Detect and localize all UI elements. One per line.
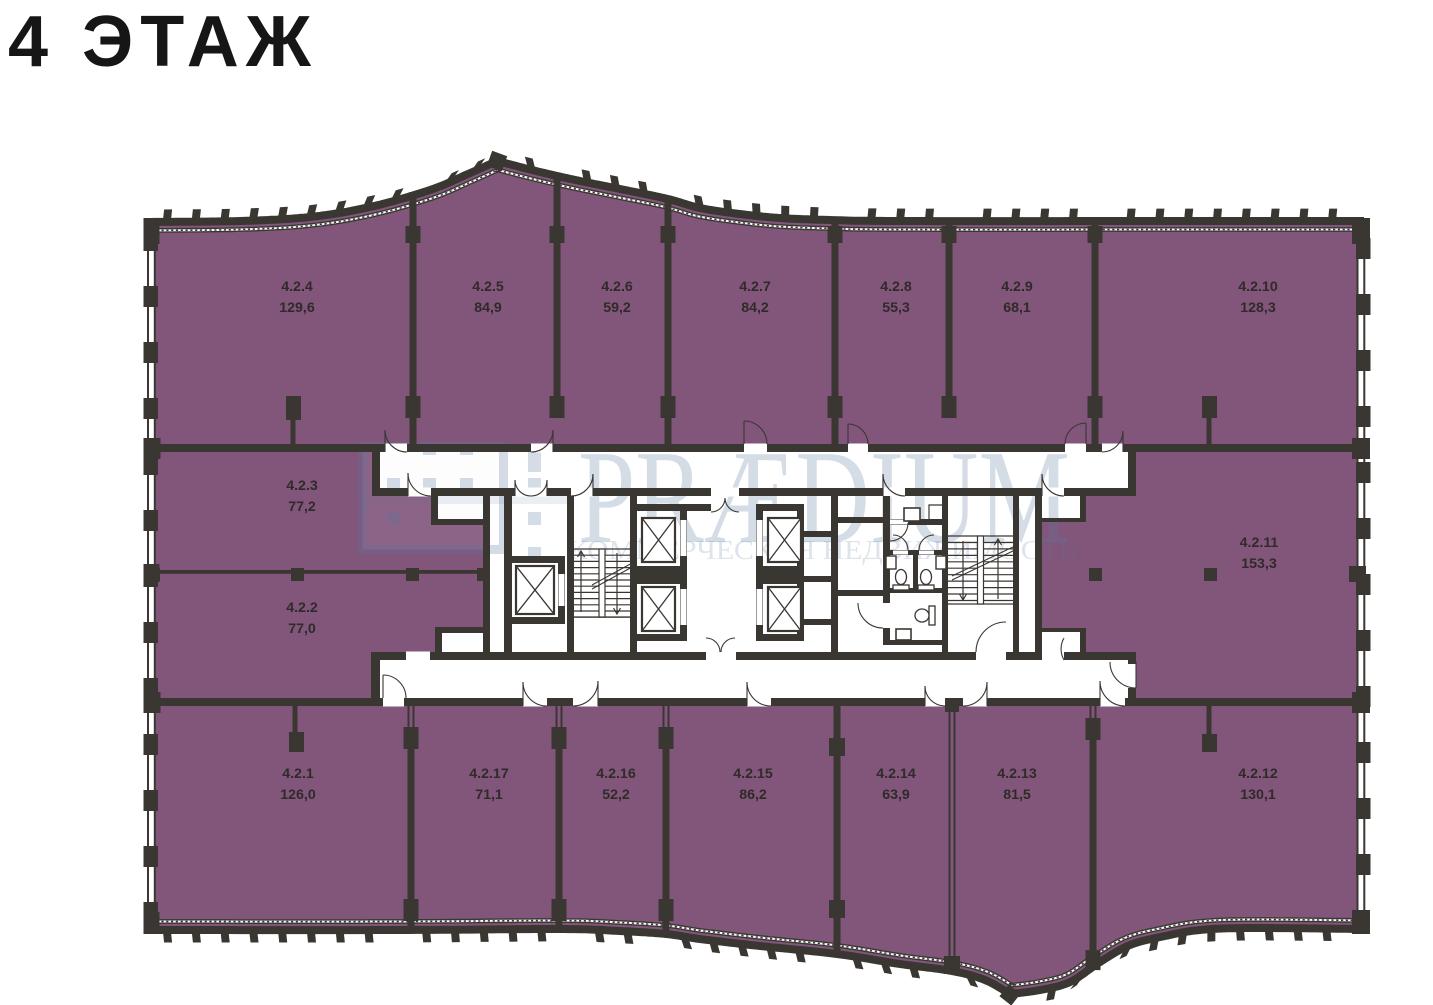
svg-text:4.2.10: 4.2.10: [1238, 279, 1278, 295]
svg-text:63,9: 63,9: [882, 787, 910, 803]
svg-text:84,2: 84,2: [741, 300, 769, 316]
svg-text:126,0: 126,0: [280, 787, 316, 803]
svg-text:153,3: 153,3: [1241, 556, 1277, 572]
svg-text:4.2.5: 4.2.5: [472, 279, 504, 295]
svg-text:4.2.17: 4.2.17: [469, 766, 509, 782]
svg-text:130,1: 130,1: [1240, 787, 1276, 803]
svg-text:4.2.15: 4.2.15: [733, 766, 773, 782]
svg-text:128,3: 128,3: [1240, 300, 1276, 316]
svg-text:81,5: 81,5: [1003, 787, 1031, 803]
svg-text:77,2: 77,2: [288, 499, 316, 515]
svg-text:86,2: 86,2: [739, 787, 767, 803]
svg-text:71,1: 71,1: [475, 787, 503, 803]
svg-text:4.2.7: 4.2.7: [739, 279, 771, 295]
svg-text:4.2.16: 4.2.16: [596, 766, 636, 782]
svg-text:55,3: 55,3: [882, 300, 910, 316]
svg-text:4.2.2: 4.2.2: [286, 600, 318, 616]
svg-text:4.2.11: 4.2.11: [1240, 535, 1279, 551]
svg-text:77,0: 77,0: [288, 621, 316, 637]
svg-text:4.2.9: 4.2.9: [1001, 279, 1033, 295]
svg-text:84,9: 84,9: [474, 300, 502, 316]
svg-text:59,2: 59,2: [603, 300, 631, 316]
svg-text:52,2: 52,2: [602, 787, 630, 803]
svg-text:129,6: 129,6: [279, 300, 315, 316]
svg-text:68,1: 68,1: [1003, 300, 1031, 316]
svg-text:4.2.8: 4.2.8: [880, 279, 912, 295]
svg-text:4.2.13: 4.2.13: [997, 766, 1037, 782]
svg-text:4.2.12: 4.2.12: [1238, 766, 1278, 782]
svg-text:4.2.6: 4.2.6: [601, 279, 633, 295]
svg-text:4.2.14: 4.2.14: [876, 766, 916, 782]
svg-text:4.2.3: 4.2.3: [286, 478, 318, 494]
svg-text:4.2.4: 4.2.4: [281, 279, 313, 295]
svg-text:4.2.1: 4.2.1: [282, 766, 314, 782]
